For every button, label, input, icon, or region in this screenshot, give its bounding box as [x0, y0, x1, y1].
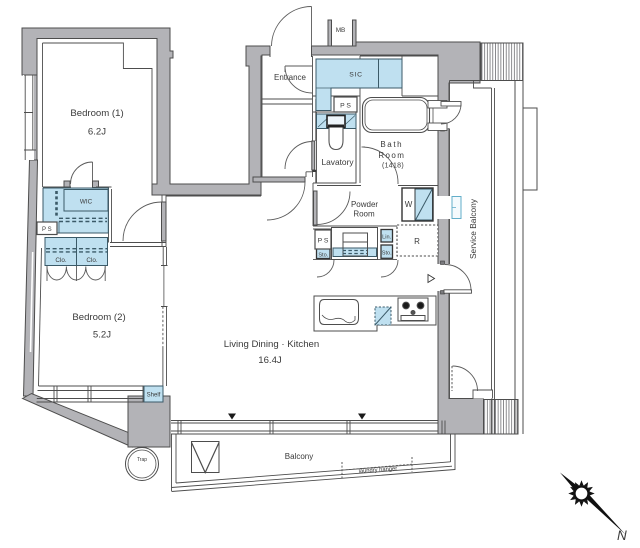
svg-text:Lin.: Lin. — [382, 235, 391, 241]
svg-text:Service Balcony: Service Balcony — [468, 198, 478, 259]
svg-text:Bath: Bath — [380, 140, 403, 149]
svg-text:SIC: SIC — [349, 72, 362, 79]
svg-text:Sto.: Sto. — [382, 251, 392, 257]
svg-text:Sto.: Sto. — [318, 253, 328, 259]
svg-text:6.2J: 6.2J — [88, 127, 106, 138]
svg-text:Clo.: Clo. — [86, 257, 97, 264]
svg-text:Shelf: Shelf — [147, 393, 161, 399]
svg-text:WIC: WIC — [80, 199, 93, 206]
svg-text:P S: P S — [318, 238, 329, 245]
svg-text:Balcony: Balcony — [285, 452, 313, 461]
svg-text:Room: Room — [378, 151, 405, 160]
svg-text:R: R — [414, 237, 420, 246]
svg-text:MB: MB — [336, 27, 346, 34]
svg-text:Trap: Trap — [137, 457, 147, 463]
svg-text:N: N — [617, 528, 627, 543]
svg-text:Clo.: Clo. — [55, 257, 66, 264]
svg-text:16.4J: 16.4J — [258, 355, 282, 366]
svg-text:P S: P S — [340, 103, 351, 110]
svg-text:Lavatory: Lavatory — [321, 157, 354, 167]
svg-text:W: W — [405, 200, 413, 209]
svg-text:(1418): (1418) — [382, 163, 404, 170]
svg-text:Bedroom (1): Bedroom (1) — [70, 108, 123, 119]
svg-text:5.2J: 5.2J — [93, 330, 111, 341]
svg-text:Bedroom (2): Bedroom (2) — [72, 312, 125, 323]
svg-text:P S: P S — [42, 227, 52, 233]
svg-text:Living Dining · Kitchen: Living Dining · Kitchen — [224, 339, 319, 350]
svg-text:Entrance: Entrance — [274, 73, 307, 82]
svg-text:Room: Room — [353, 210, 375, 219]
svg-text:Powder: Powder — [351, 200, 378, 209]
